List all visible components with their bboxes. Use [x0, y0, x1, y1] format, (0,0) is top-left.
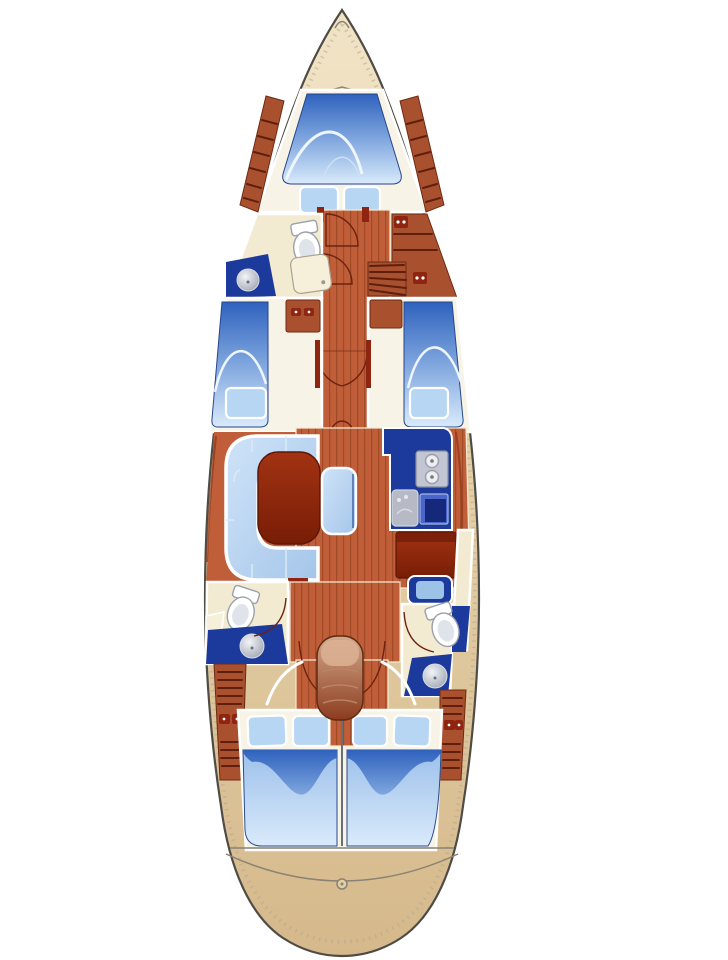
saloon-bench-icon	[322, 468, 356, 534]
saloon-table-icon	[258, 452, 320, 544]
stern-fitting-dot	[341, 883, 344, 886]
galley-round-sink	[392, 490, 418, 526]
dresser-cabinet	[370, 300, 402, 328]
door-jamb	[366, 340, 371, 388]
nav-seat-cushion	[416, 581, 444, 599]
drawer-handle	[394, 216, 408, 228]
square-sink-icon	[420, 494, 448, 524]
chart-table-top	[396, 532, 456, 542]
starboard-aft-locker	[440, 690, 466, 780]
galley	[383, 428, 452, 530]
forward-cabin	[240, 90, 444, 213]
shower-tray	[290, 253, 333, 294]
helm-seat-top	[321, 640, 359, 666]
round-sink-icon	[237, 269, 259, 291]
two-burner-stove-icon	[416, 451, 448, 487]
round-sink-icon	[423, 664, 447, 688]
helm-seat-icon	[317, 636, 363, 720]
pillow-icon	[410, 388, 448, 418]
aft-double-berths	[238, 710, 442, 850]
pillow-icon	[353, 716, 387, 746]
door-jamb	[362, 207, 369, 222]
port-aft-head	[206, 582, 288, 664]
pillow-icon	[226, 388, 266, 418]
pillow-icon	[293, 716, 329, 746]
yacht-floor-plan	[0, 0, 728, 960]
pillow-icon	[247, 715, 286, 746]
floor-plan-canvas	[0, 0, 728, 960]
forward-head	[226, 214, 332, 298]
pillow-icon	[393, 715, 430, 746]
port-guest-cabin	[209, 298, 322, 432]
door-jamb	[315, 340, 320, 388]
drawer-handle	[413, 272, 427, 284]
hanging-locker-slats-icon	[368, 262, 406, 296]
dresser-cabinet	[286, 300, 320, 332]
round-sink-icon	[240, 634, 264, 658]
starboard-guest-cabin	[366, 298, 471, 432]
